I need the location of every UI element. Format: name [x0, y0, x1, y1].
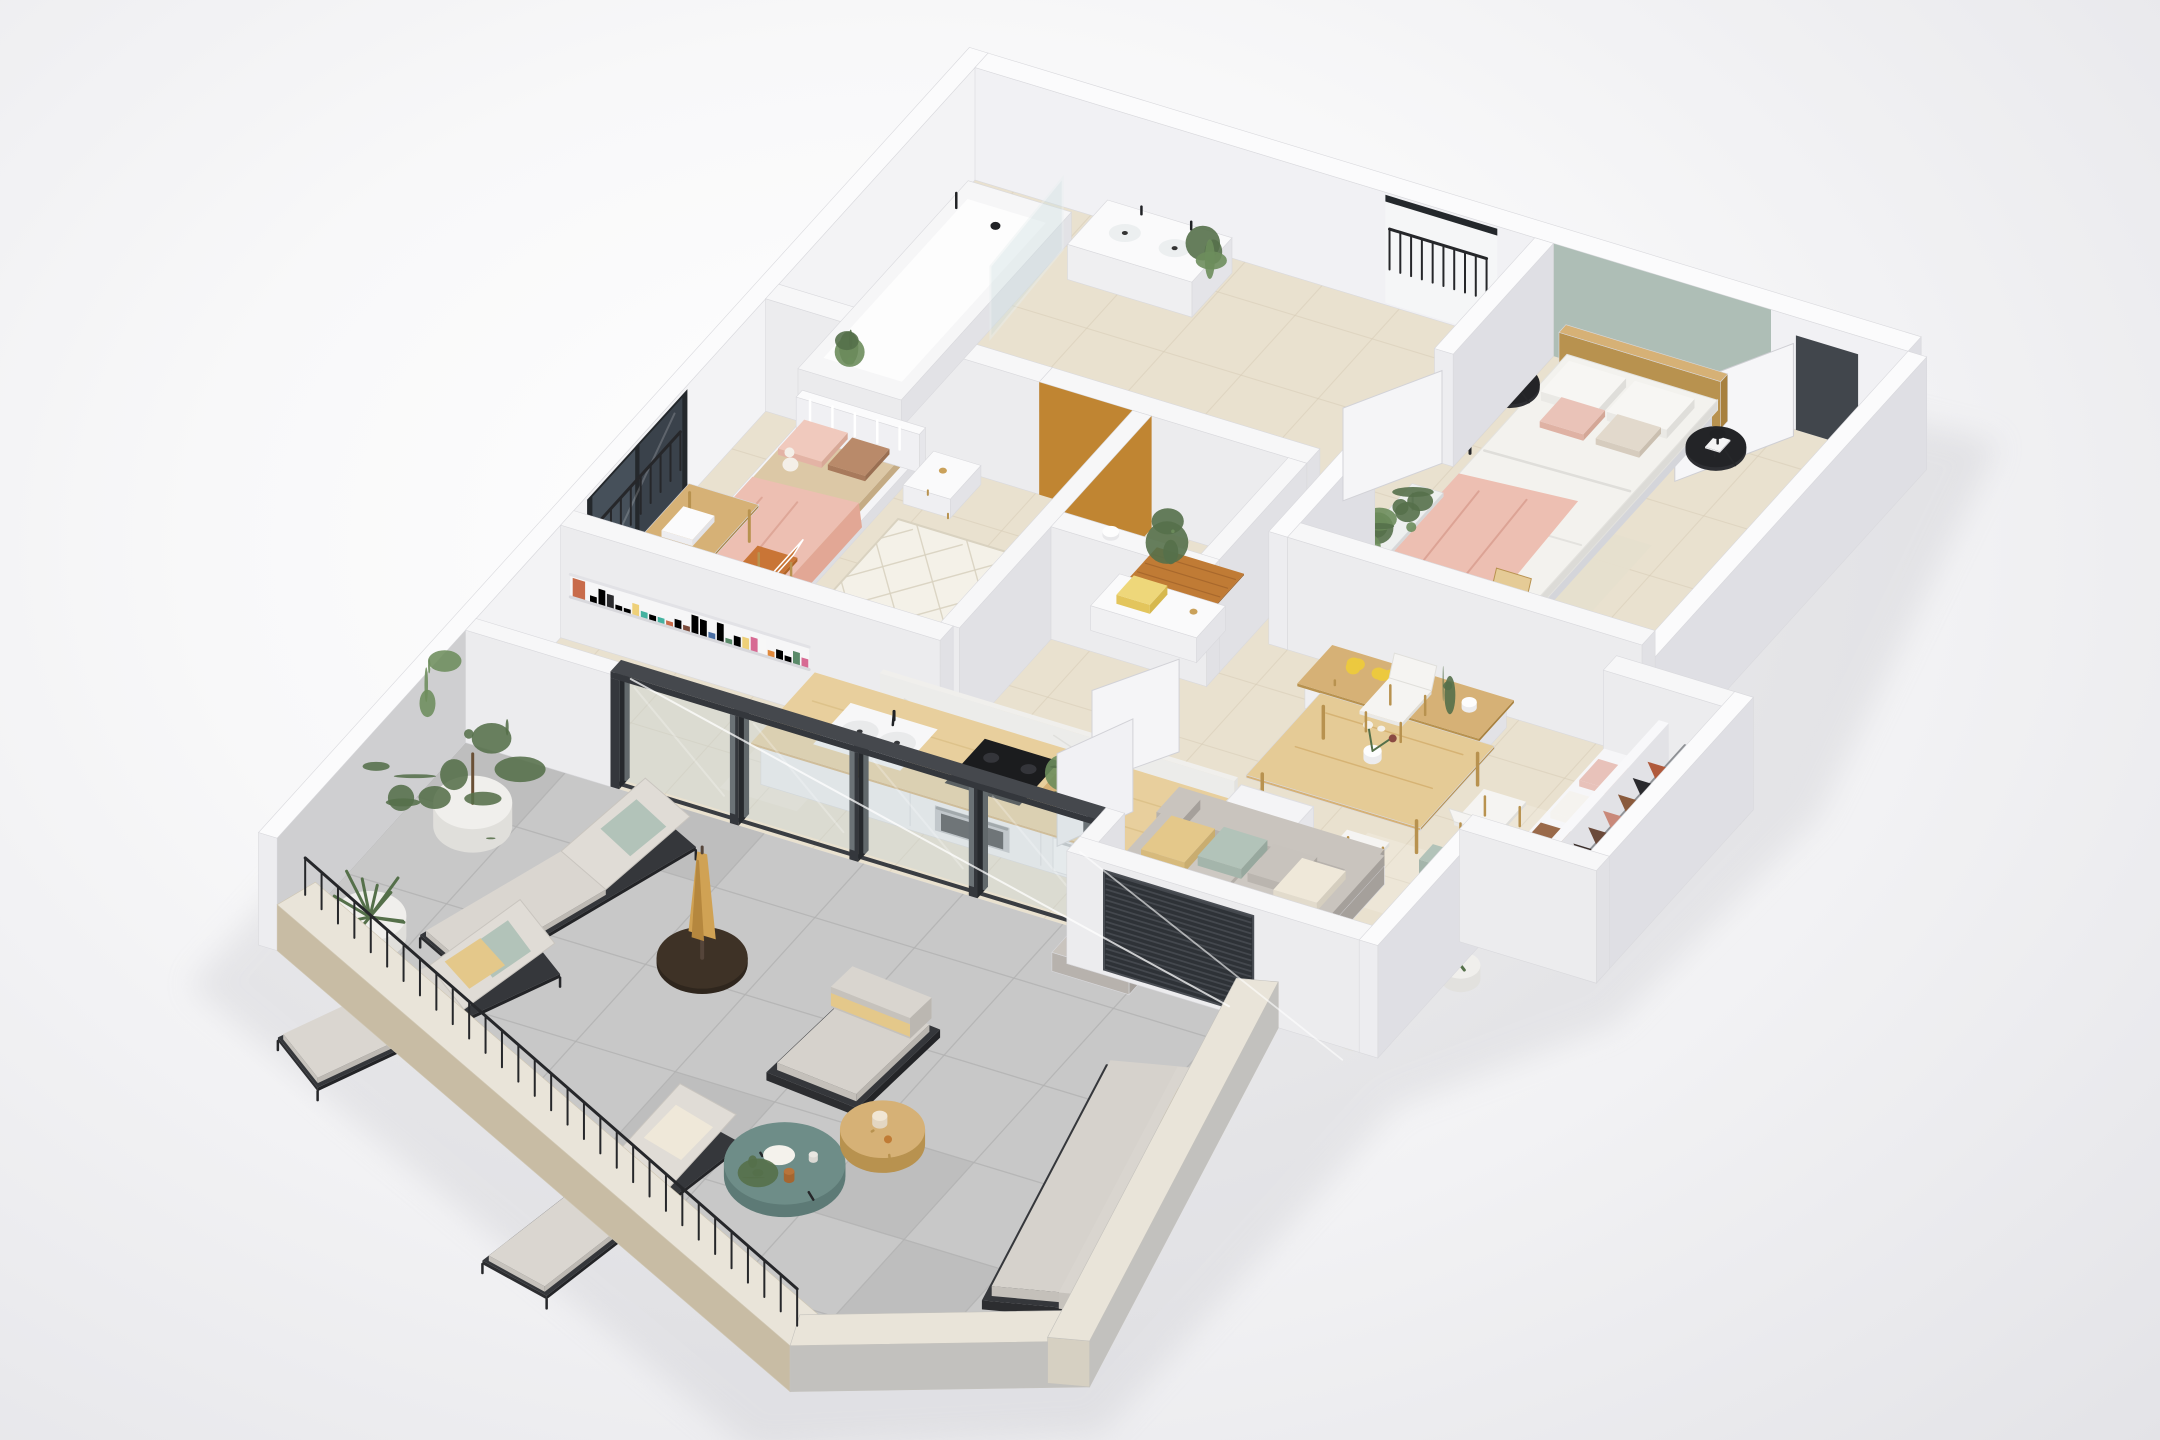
wooden-side-table: [840, 1100, 925, 1173]
render-backdrop: [0, 0, 2160, 1440]
teal-coffee-table: [724, 1122, 846, 1217]
floor-plan-3d-render: [0, 0, 2160, 1440]
nightstand-right: [1686, 426, 1747, 471]
